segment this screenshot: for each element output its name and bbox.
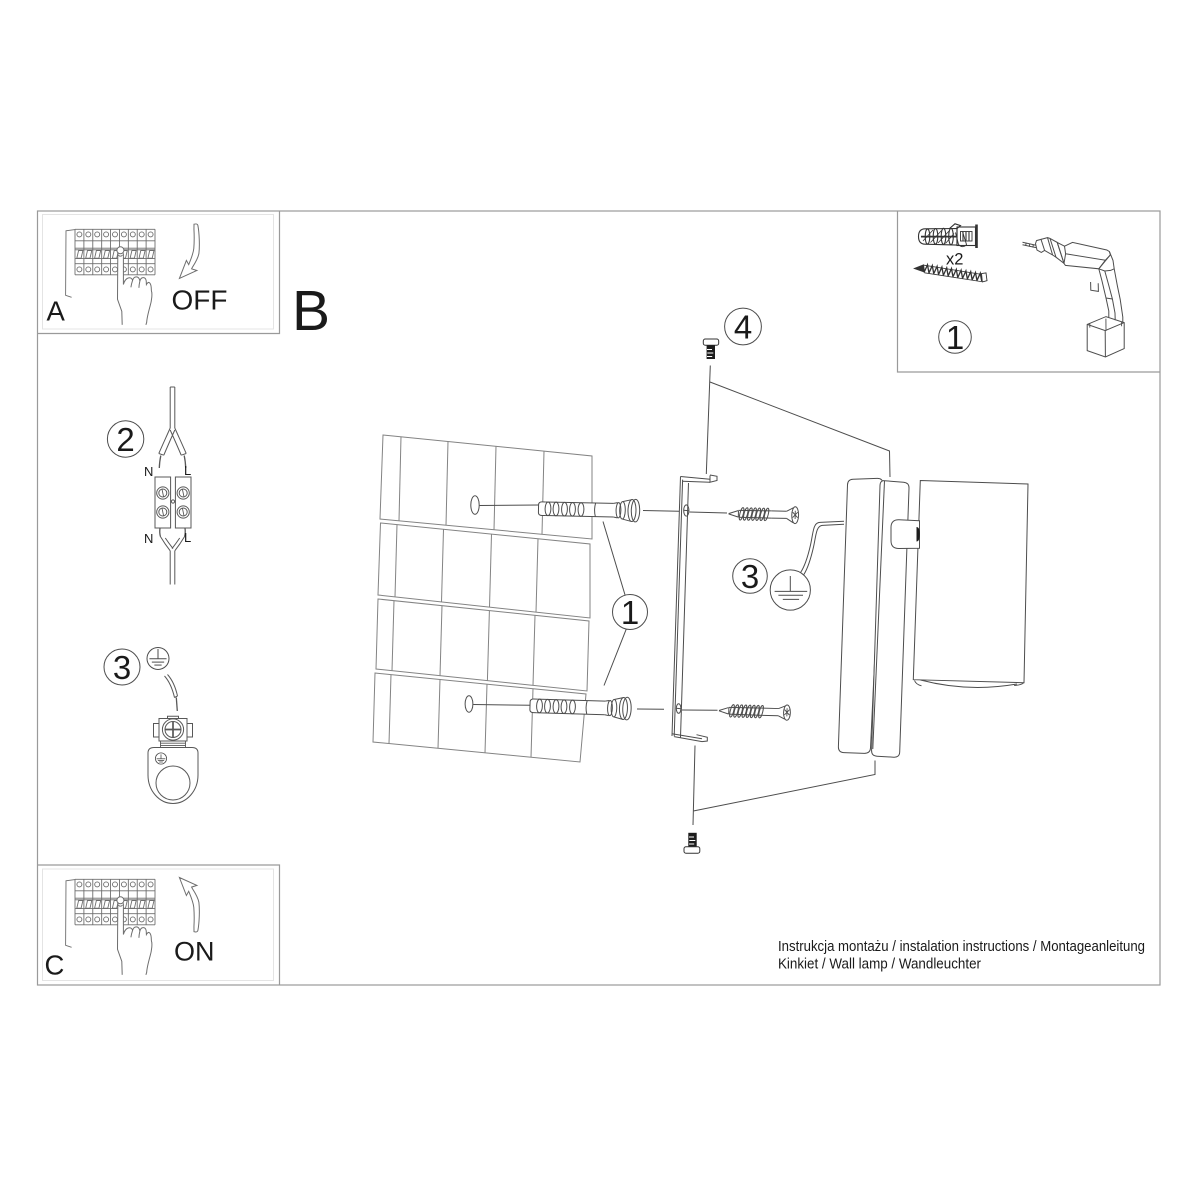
svg-text:3: 3 bbox=[741, 558, 759, 595]
svg-text:C: C bbox=[45, 950, 65, 981]
svg-text:N: N bbox=[144, 531, 153, 546]
svg-text:B: B bbox=[292, 279, 330, 343]
svg-text:N: N bbox=[144, 464, 153, 479]
svg-text:x2: x2 bbox=[946, 251, 963, 269]
svg-text:Instrukcja montażu / instalati: Instrukcja montażu / instalation instruc… bbox=[778, 938, 1145, 955]
svg-text:OFF: OFF bbox=[172, 285, 228, 316]
svg-text:L: L bbox=[184, 463, 191, 478]
svg-text:A: A bbox=[47, 296, 66, 327]
svg-text:3: 3 bbox=[113, 649, 131, 686]
svg-text:1: 1 bbox=[946, 319, 964, 356]
svg-text:1: 1 bbox=[621, 594, 639, 631]
svg-text:4: 4 bbox=[734, 308, 752, 345]
svg-text:2: 2 bbox=[116, 421, 134, 458]
svg-text:Kinkiet / Wall lamp / Wandleuc: Kinkiet / Wall lamp / Wandleuchter bbox=[778, 956, 981, 973]
svg-text:ON: ON bbox=[174, 937, 215, 967]
svg-text:L: L bbox=[184, 530, 191, 545]
